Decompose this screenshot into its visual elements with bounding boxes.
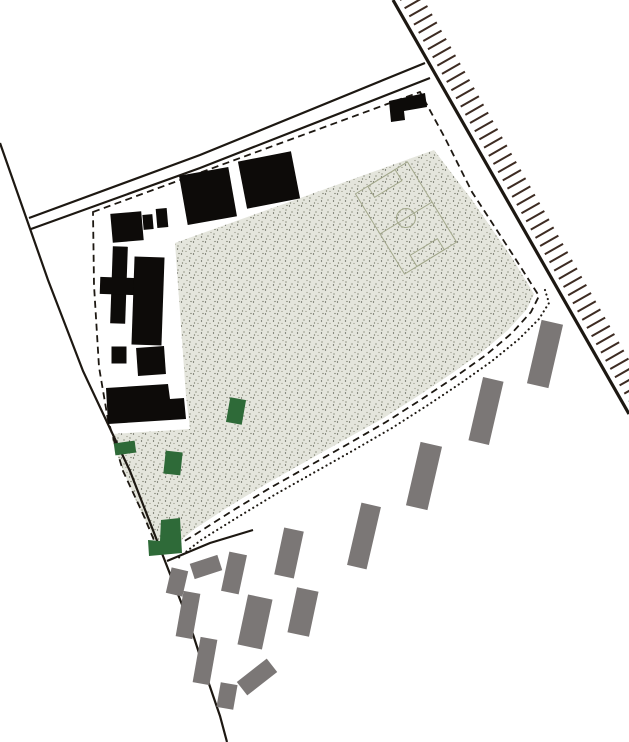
black-building-bar-horiz xyxy=(100,277,137,295)
black-building-small xyxy=(112,347,127,364)
site-plan xyxy=(0,0,629,742)
black-building-l-wing xyxy=(142,214,153,230)
black-building-l-main xyxy=(110,211,143,243)
black-building-slab xyxy=(131,257,164,346)
black-building-square xyxy=(136,346,166,376)
site-plan-canvas xyxy=(0,0,629,742)
black-building-tick xyxy=(156,208,169,228)
green-building-3 xyxy=(163,451,182,476)
black-building-hall-2 xyxy=(238,151,300,208)
black-building-hall-1 xyxy=(179,167,237,225)
